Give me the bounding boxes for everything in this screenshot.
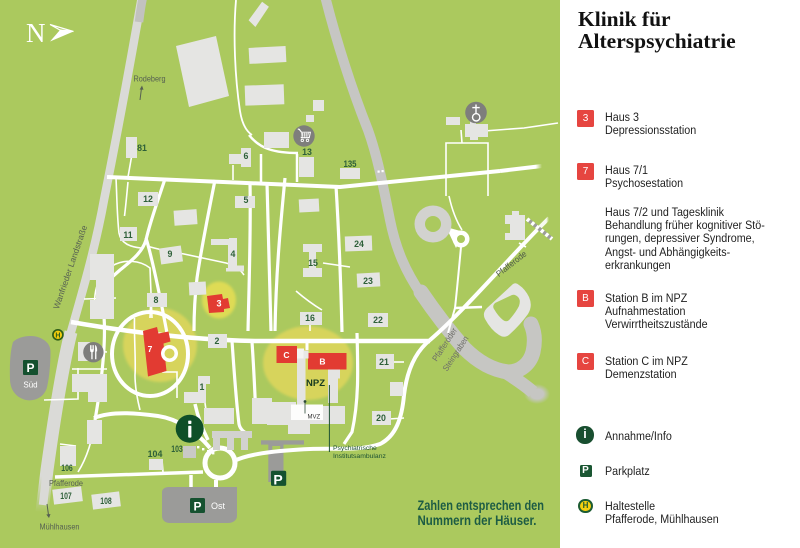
- svg-text:4: 4: [231, 249, 236, 259]
- svg-text:107: 107: [60, 491, 72, 501]
- svg-text:N: N: [26, 18, 46, 48]
- svg-text:Ost: Ost: [211, 501, 226, 511]
- svg-text:8: 8: [154, 295, 159, 305]
- svg-text:3: 3: [216, 299, 221, 309]
- svg-text:1: 1: [200, 382, 205, 392]
- svg-text:106: 106: [61, 463, 73, 473]
- svg-text:81: 81: [137, 143, 147, 153]
- svg-text:C: C: [283, 350, 289, 360]
- svg-text:P: P: [193, 500, 201, 514]
- svg-text:23: 23: [363, 276, 373, 286]
- svg-text:20: 20: [376, 413, 386, 423]
- svg-text:P: P: [26, 361, 34, 375]
- svg-text:Psychiatrische: Psychiatrische: [333, 445, 377, 452]
- svg-text:22: 22: [373, 315, 383, 325]
- svg-text:16: 16: [305, 313, 315, 323]
- svg-text:7: 7: [148, 344, 153, 354]
- svg-text:21: 21: [379, 357, 389, 367]
- svg-text:Süd: Süd: [23, 381, 37, 390]
- svg-text:Institutsambulanz: Institutsambulanz: [333, 453, 386, 460]
- svg-text:H: H: [55, 333, 60, 340]
- svg-text:9: 9: [168, 249, 173, 259]
- svg-text:P: P: [273, 472, 282, 488]
- svg-text:6: 6: [244, 151, 249, 161]
- svg-text:MVZ: MVZ: [308, 415, 321, 421]
- svg-text:103: 103: [171, 444, 183, 454]
- svg-text:12: 12: [143, 194, 153, 204]
- svg-text:Zahlen entsprechen den: Zahlen entsprechen den: [418, 498, 545, 513]
- svg-text:108: 108: [100, 496, 112, 506]
- svg-text:24: 24: [354, 239, 364, 249]
- svg-text:Mühlhausen: Mühlhausen: [40, 522, 80, 532]
- svg-text:13: 13: [302, 147, 312, 157]
- svg-text:Nummern der Häuser.: Nummern der Häuser.: [418, 513, 537, 528]
- svg-text:15: 15: [308, 258, 318, 268]
- svg-text:135: 135: [344, 159, 357, 169]
- svg-text:NPZ: NPZ: [306, 378, 325, 389]
- svg-text:11: 11: [123, 230, 132, 240]
- svg-text:Pfafferode: Pfafferode: [49, 478, 83, 488]
- svg-text:2: 2: [215, 336, 220, 346]
- svg-text:104: 104: [148, 449, 163, 459]
- svg-text:5: 5: [244, 195, 249, 205]
- svg-text:B: B: [319, 356, 325, 366]
- svg-text:Rodeberg: Rodeberg: [134, 74, 166, 84]
